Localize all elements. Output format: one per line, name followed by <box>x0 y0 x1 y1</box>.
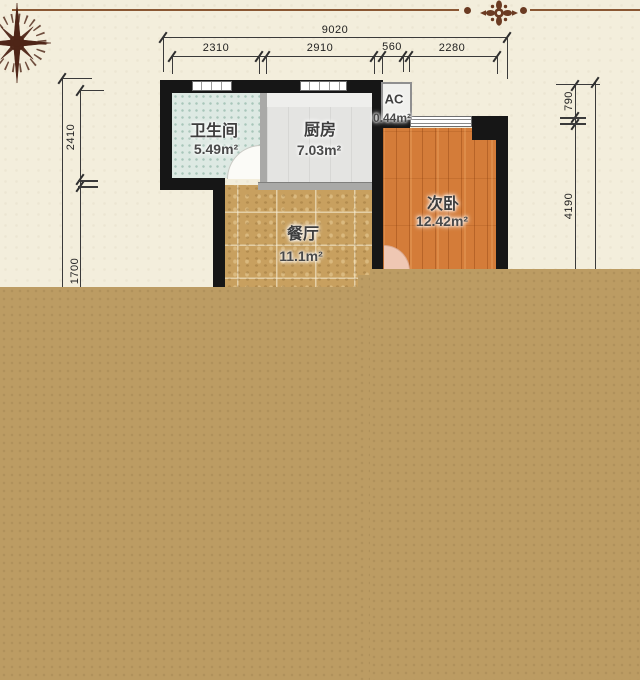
label-ac-area: 0.44m² <box>373 111 411 125</box>
dim-line-right-outer <box>595 82 596 269</box>
dim-line-top-segments <box>172 56 497 57</box>
dim-ext <box>382 56 383 74</box>
label-kitchen-area: 7.03m² <box>297 142 341 158</box>
header-rule-left <box>12 9 459 11</box>
dim-ext <box>403 56 404 72</box>
label-bedroom-name: 次卧 <box>427 190 459 214</box>
dim-seg-560: 560 <box>382 41 402 53</box>
label-dining-area: 11.1m² <box>279 248 323 264</box>
wall-dining-left <box>213 185 225 290</box>
dim-seg-2910: 2910 <box>307 42 333 54</box>
bathroom-window <box>192 81 232 91</box>
dim-line-left-outer <box>62 78 63 287</box>
bedroom-window <box>410 116 472 127</box>
dim-ext <box>78 186 98 188</box>
dim-left-2410: 2410 <box>65 124 77 150</box>
dim-ext <box>507 37 508 79</box>
dim-ext <box>172 56 173 74</box>
dim-seg-2310: 2310 <box>203 42 229 54</box>
cover-block-right <box>370 269 640 680</box>
cover-block-step <box>358 275 370 680</box>
label-ac-name: AC <box>385 92 404 107</box>
dim-ext <box>560 117 586 119</box>
label-kitchen-name: 厨房 <box>304 116 336 140</box>
dim-ext <box>78 180 98 182</box>
header-dot-left-icon <box>464 7 471 14</box>
label-bedroom-area: 12.42m² <box>416 213 468 229</box>
dim-ext <box>409 56 410 72</box>
dim-ext <box>62 78 92 79</box>
dim-ext <box>560 123 586 125</box>
wall-bathroom-kitchen-divider <box>260 93 267 182</box>
dim-top-total: 9020 <box>322 24 348 36</box>
label-dining-name: 餐厅 <box>287 220 319 244</box>
dim-left-1700: 1700 <box>69 258 81 284</box>
dim-ext <box>374 56 375 74</box>
dim-right-790: 790 <box>563 91 575 111</box>
header-rule-right <box>530 9 640 11</box>
label-bathroom-area: 5.49m² <box>194 141 238 157</box>
floral-medallion-icon <box>477 0 521 27</box>
kitchen-window <box>300 81 347 91</box>
dim-line-top-total <box>163 37 507 38</box>
dim-ext <box>497 56 498 74</box>
compass-rose-icon <box>0 3 54 85</box>
wall-left <box>160 80 172 190</box>
wall-bedroom-right <box>496 116 508 273</box>
label-bathroom-name: 卫生间 <box>190 117 238 141</box>
dim-right-4190: 4190 <box>563 193 575 219</box>
header-dot-right-icon <box>520 7 527 14</box>
cover-block-left <box>0 287 358 680</box>
dim-ext <box>80 90 104 91</box>
floorplan-canvas: 9020 2310 2910 560 2280 2410 1700 790 41… <box>0 0 640 680</box>
dim-ext <box>259 56 260 74</box>
dim-ext <box>163 37 164 72</box>
dim-seg-2280: 2280 <box>439 42 465 54</box>
wall-kitchen-dining <box>258 182 372 190</box>
dim-ext <box>266 56 267 74</box>
